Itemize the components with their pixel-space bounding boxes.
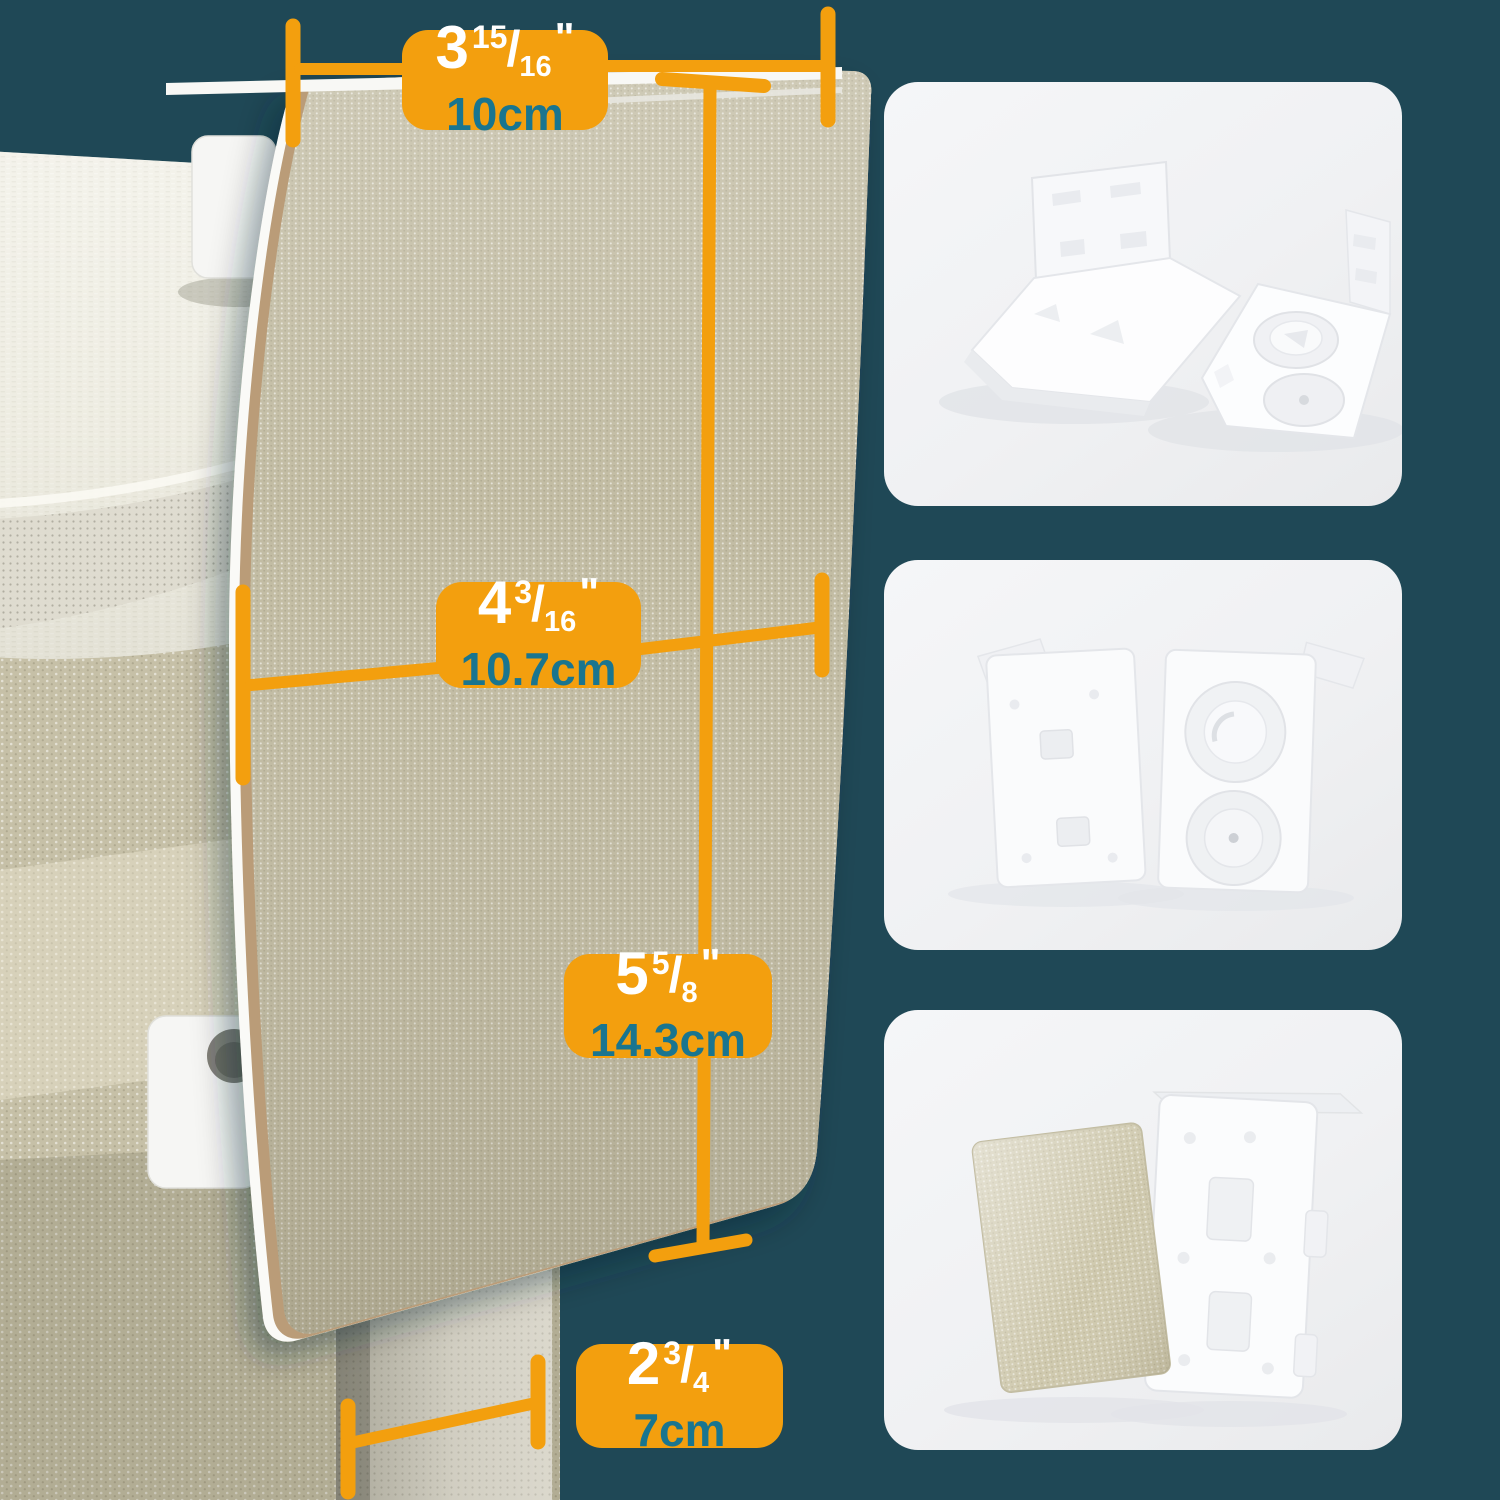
- bracket-covers-3d-illustration: [884, 82, 1402, 506]
- product-infographic: 315/16" 10cm 43/16" 10.7cm 55/8" 14.3cm …: [0, 0, 1500, 1500]
- dimension-metric: 10cm: [446, 91, 564, 137]
- bracket-cover-panel: [229, 62, 880, 1342]
- dimension-label-cover-width: 43/16" 10.7cm: [436, 582, 641, 688]
- dimension-inches: 315/16": [435, 23, 574, 89]
- dimension-inches: 43/16": [478, 578, 599, 644]
- inset-photo-bracket-covers-front-back-view: [884, 560, 1402, 950]
- dimension-label-top-width: 315/16" 10cm: [402, 30, 608, 130]
- roller-shade-scene-photo: [0, 0, 880, 1500]
- dimension-inches: 55/8": [615, 949, 720, 1015]
- dimension-metric: 10.7cm: [460, 646, 616, 692]
- inset-photo-bracket-covers-3d-view: [884, 82, 1402, 506]
- dimension-inches: 23/4": [627, 1339, 732, 1405]
- inset-photo-fabric-panel-and-bracket-plate: [884, 1010, 1402, 1450]
- dimension-metric: 14.3cm: [590, 1017, 746, 1063]
- fabric-panel-and-plate-illustration: [884, 1010, 1402, 1450]
- dimension-metric: 7cm: [633, 1407, 725, 1453]
- bracket-covers-front-back-illustration: [884, 560, 1402, 950]
- dimension-label-cover-depth: 23/4" 7cm: [576, 1344, 783, 1448]
- dimension-label-cover-height: 55/8" 14.3cm: [564, 954, 772, 1058]
